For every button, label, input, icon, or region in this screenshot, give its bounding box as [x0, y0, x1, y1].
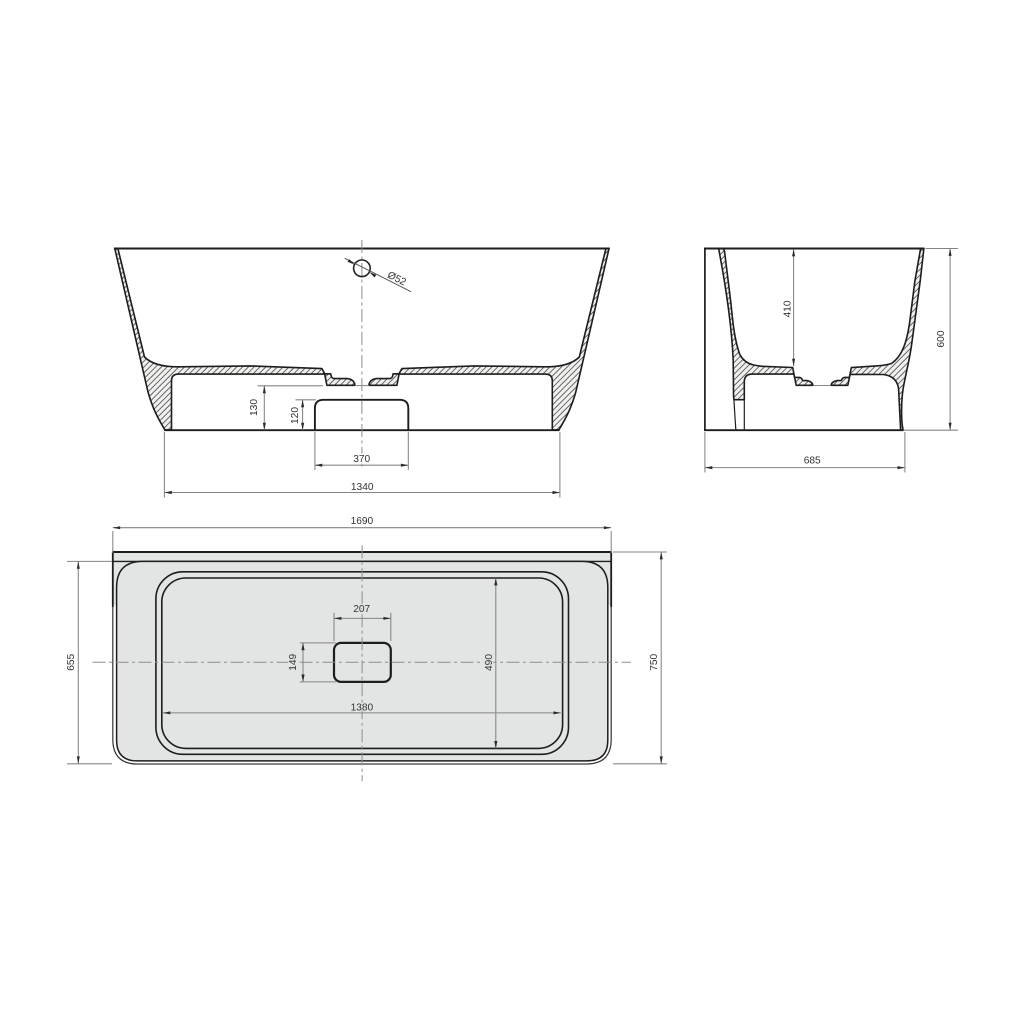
svg-text:410: 410 [783, 300, 794, 317]
svg-text:1340: 1340 [351, 482, 374, 493]
svg-text:655: 655 [66, 653, 77, 670]
svg-text:490: 490 [484, 654, 495, 671]
svg-text:1690: 1690 [351, 516, 374, 527]
svg-text:600: 600 [936, 330, 947, 347]
svg-text:750: 750 [649, 653, 660, 670]
svg-text:120: 120 [290, 407, 301, 424]
svg-text:370: 370 [353, 454, 370, 465]
svg-text:1380: 1380 [351, 702, 374, 713]
svg-text:130: 130 [249, 399, 260, 416]
svg-text:685: 685 [804, 456, 821, 467]
svg-text:Ø52: Ø52 [385, 270, 407, 289]
svg-text:149: 149 [288, 653, 299, 670]
svg-text:207: 207 [353, 604, 370, 615]
